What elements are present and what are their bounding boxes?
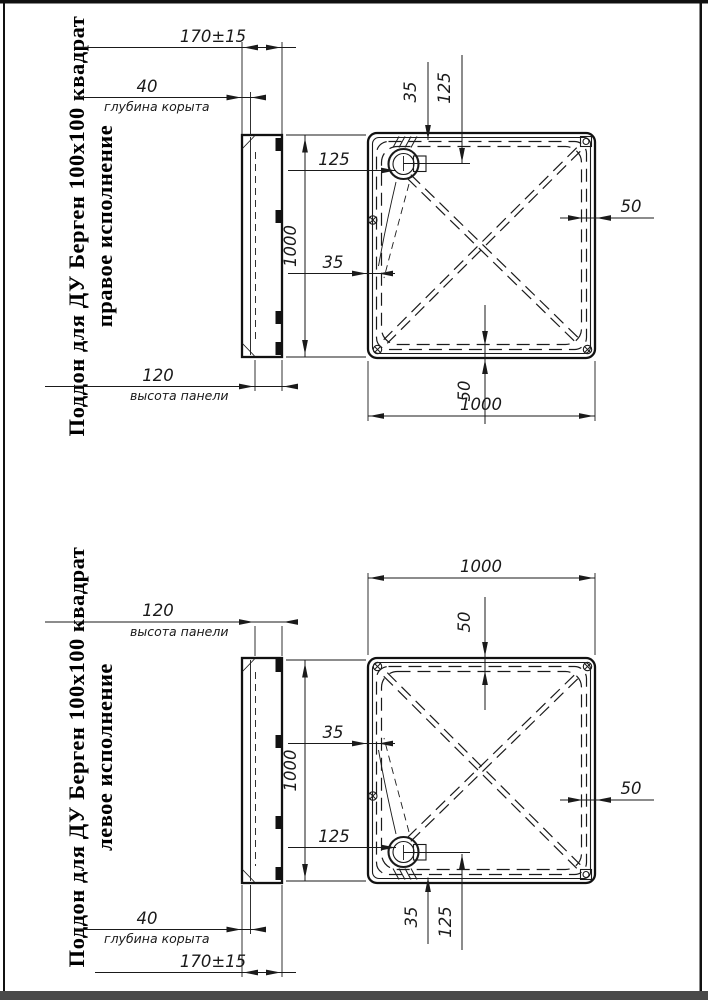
dim-value: 1000: [460, 395, 502, 414]
clip: [276, 210, 282, 223]
dim-value: 35: [323, 723, 344, 742]
dim-value: 35: [402, 907, 421, 928]
clip: [276, 735, 282, 748]
right-top-view: [368, 133, 595, 358]
left-title-line2: левое исполнение: [92, 663, 117, 851]
dim-value: 50: [455, 612, 474, 633]
tray-outline: [368, 658, 595, 883]
dim-value: 50: [621, 197, 642, 216]
right-side-view: [242, 135, 282, 357]
drawing-sheet: Поддон для ДУ Берген 100x100 квадрат пра…: [0, 0, 708, 1000]
frame-bottom-shadow: [0, 991, 708, 1000]
left-dim-side-horizontal: 1000: [368, 557, 595, 655]
right-dim-rim-top: 35: [401, 62, 428, 140]
dim-value: 1000: [281, 750, 300, 792]
dim-value: 35: [323, 253, 344, 272]
cad-canvas: Поддон для ДУ Берген 100x100 квадрат пра…: [0, 0, 708, 1000]
dim-value: 170±15: [180, 27, 246, 46]
dim-value: 125: [318, 150, 350, 169]
tray-outline: [368, 133, 595, 358]
left-side-view: [242, 658, 282, 883]
dim-value: 125: [318, 827, 350, 846]
clip: [276, 138, 282, 151]
dim-label: глубина корыта: [104, 99, 210, 114]
right-title-line1: Поддон для ДУ Берген 100x100 квадрат: [64, 16, 89, 437]
dim-value: 35: [401, 82, 420, 103]
side-panel-outline: [242, 658, 282, 883]
dim-value: 40: [137, 909, 158, 928]
clip: [276, 659, 282, 672]
dim-value: 120: [142, 366, 174, 385]
left-version-drawing: Поддон для ДУ Берген 100x100 квадрат лев…: [45, 547, 654, 977]
dim-value: 120: [142, 601, 174, 620]
frame-right: [700, 0, 703, 992]
dim-value: 40: [137, 77, 158, 96]
clip: [276, 342, 282, 355]
clip: [276, 816, 282, 829]
dim-value: 1000: [460, 557, 502, 576]
right-version-title: Поддон для ДУ Берген 100x100 квадрат пра…: [64, 16, 117, 437]
dim-label: глубина корыта: [104, 931, 210, 946]
dim-value: 1000: [281, 225, 300, 267]
clip: [276, 867, 282, 880]
right-version-drawing: Поддон для ДУ Берген 100x100 квадрат пра…: [45, 16, 654, 437]
frame-top: [0, 0, 708, 4]
frame-left: [3, 0, 5, 992]
dim-value: 125: [435, 72, 454, 104]
right-dim-side-horizontal: 1000: [368, 361, 595, 421]
left-dim-bowl-depth: 40 глубина корыта: [75, 885, 264, 946]
clip: [276, 311, 282, 324]
dim-value: 50: [621, 779, 642, 798]
left-dim-rim-bottom: 35: [402, 878, 428, 945]
dim-label: высота панели: [130, 624, 228, 639]
left-title-line1: Поддон для ДУ Берген 100x100 квадрат: [64, 547, 89, 968]
dim-label: высота панели: [130, 388, 228, 403]
right-dim-width-overall: 170±15: [75, 27, 296, 134]
dim-value: 125: [436, 906, 455, 938]
left-version-title: Поддон для ДУ Берген 100x100 квадрат лев…: [64, 547, 117, 968]
right-title-line2: правое исполнение: [92, 125, 117, 327]
dim-value: 170±15: [180, 952, 246, 971]
left-top-view: [368, 658, 595, 883]
